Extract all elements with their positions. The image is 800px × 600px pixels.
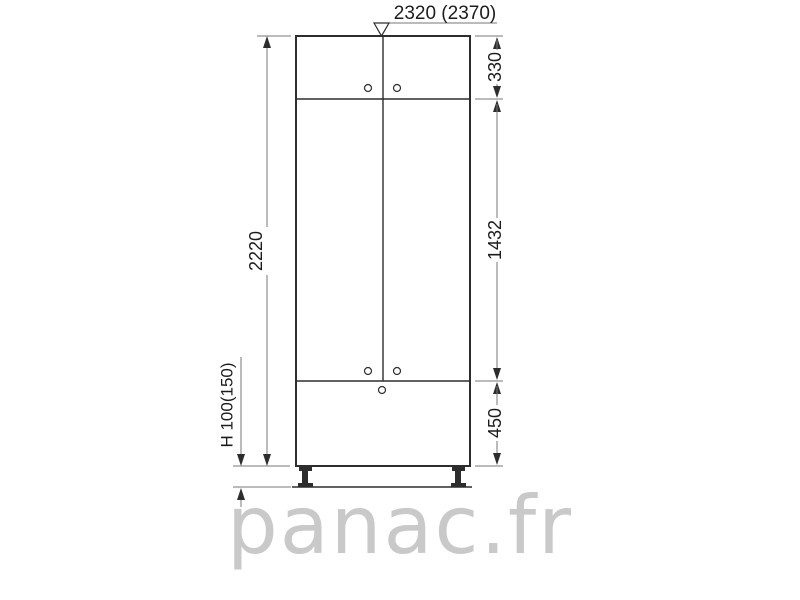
arrow-down-icon <box>493 86 501 98</box>
arrow-down-icon <box>237 454 245 466</box>
dimension-total-height: 2220 <box>233 36 291 466</box>
dimension-bottom-section: 450 <box>475 382 505 466</box>
top-section-label: 330 <box>485 52 505 82</box>
bottom-section-label: 450 <box>485 408 505 438</box>
dimension-total-width: 2320 (2370) <box>374 3 497 36</box>
adjustable-foot-right <box>451 466 466 487</box>
leader-arrow-down-icon <box>374 23 389 36</box>
arrow-down-icon <box>263 454 271 466</box>
plinth-height-label: H 100(150) <box>218 362 237 447</box>
adjustable-foot-left <box>298 466 313 487</box>
dimension-middle-section: 1432 <box>475 100 505 381</box>
handle-hole <box>394 85 401 92</box>
drawing-canvas: panac.fr <box>0 0 800 600</box>
arrow-down-icon <box>493 368 501 380</box>
cabinet-body <box>292 36 472 487</box>
middle-section-label: 1432 <box>485 220 505 260</box>
total-height-label: 2220 <box>246 231 266 271</box>
arrow-up-icon <box>263 36 271 48</box>
arrow-down-icon <box>493 453 501 465</box>
cabinet-technical-drawing: panac.fr <box>0 0 800 600</box>
handle-hole <box>379 387 386 394</box>
watermark-text: panac.fr <box>227 479 573 572</box>
dimension-top-section: 330 <box>475 36 505 99</box>
handle-hole <box>365 368 372 375</box>
handle-hole <box>365 85 372 92</box>
handle-hole <box>394 368 401 375</box>
total-width-label: 2320 (2370) <box>394 3 496 24</box>
